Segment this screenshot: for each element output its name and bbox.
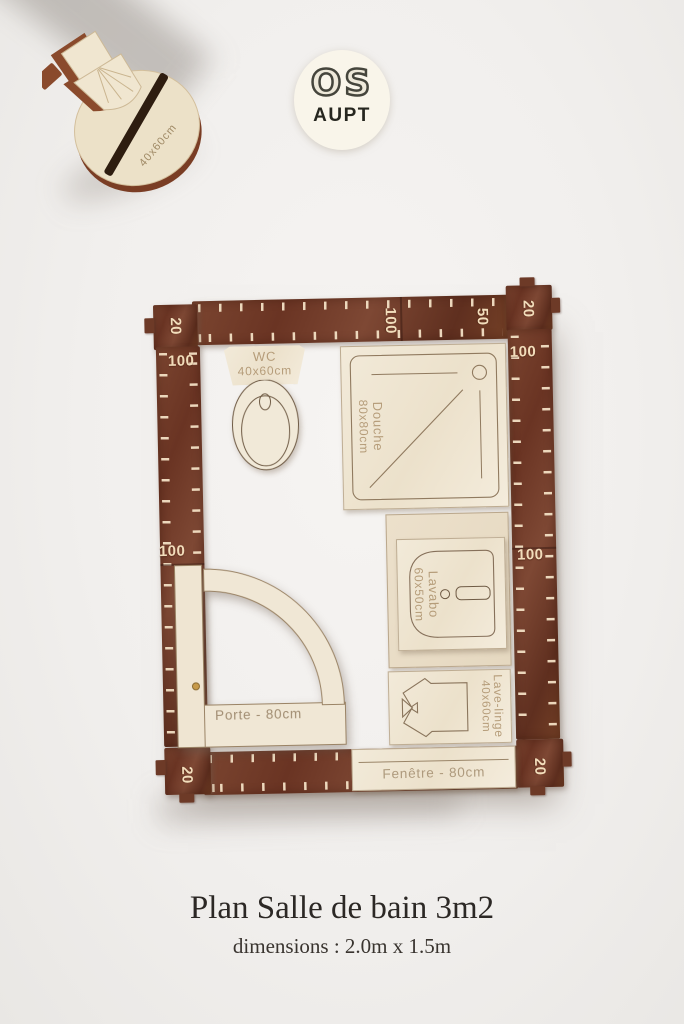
ruler-number: 100 <box>381 303 399 339</box>
ruler-ticks <box>198 298 502 312</box>
douche-size-label: 80x80cm <box>356 381 372 473</box>
lavabo-plate: Lavabo 60x50cm <box>396 537 507 651</box>
standing-wc-piece <box>42 16 218 204</box>
douche-label-block: Douche 80x80cm <box>353 380 387 473</box>
porte-label: Porte - 80cm <box>198 706 318 724</box>
fenetre-label: Fenêtre - 80cm <box>353 764 515 782</box>
ruler-number: 50 <box>473 302 491 332</box>
lavabo-size-label: 60x50cm <box>411 553 427 637</box>
douche-tray: Douche 80x80cm <box>340 343 509 510</box>
ruler-number: 100 <box>152 542 192 560</box>
ruler-number: 100 <box>161 352 201 370</box>
wc-bowl <box>227 379 305 477</box>
fenetre-glass-line <box>359 759 509 763</box>
product-title: Plan Salle de bain 3m2 <box>0 890 684 927</box>
porte-shape <box>170 556 354 762</box>
lavabo-stand: 60x50cm Lavabo 60x50cm <box>385 512 511 669</box>
lave-linge-label: Lave-linge <box>491 666 507 746</box>
ruler-ticks <box>541 335 557 733</box>
ruler-number: 20 <box>519 294 537 324</box>
floor-plan-assembly: 20 100 50 20 100 100 20 100 100 20 WC 40… <box>145 281 566 804</box>
lavabo-label-block: Lavabo 60x50cm <box>410 552 442 637</box>
lave-linge-plate: Lave-linge 40x60cm <box>388 669 513 746</box>
ruler-top-strip <box>192 295 509 346</box>
lave-linge-label-block: Lave-linge 40x60cm <box>477 666 507 747</box>
douche-label: Douche <box>370 380 387 472</box>
wc-size-label: 40x60cm <box>224 363 305 379</box>
ruler-ticks <box>511 336 527 734</box>
fenetre-piece: Fenêtre - 80cm <box>351 746 516 791</box>
ruler-right-strip <box>508 329 561 740</box>
ruler-number: 100 <box>510 546 550 564</box>
ruler-ticks <box>199 328 503 342</box>
ruler-number: 20 <box>167 311 185 341</box>
product-dimensions: dimensions : 2.0m x 1.5m <box>0 934 684 959</box>
brand-logo-monogram: OS <box>294 63 390 104</box>
wc-label: WC <box>224 348 305 365</box>
ruler-number: 20 <box>531 752 549 782</box>
porte-piece: Porte - 80cm <box>170 556 354 762</box>
ruler-number: 20 <box>178 760 196 790</box>
bathroom-plan-product-photo: 40x60cm OS AUPT <box>0 0 684 1024</box>
brand-logo-name: AUPT <box>294 105 390 127</box>
ruler-number: 100 <box>503 343 543 361</box>
lavabo-label: Lavabo <box>425 552 442 636</box>
brand-logo-badge: OS AUPT <box>294 50 390 150</box>
